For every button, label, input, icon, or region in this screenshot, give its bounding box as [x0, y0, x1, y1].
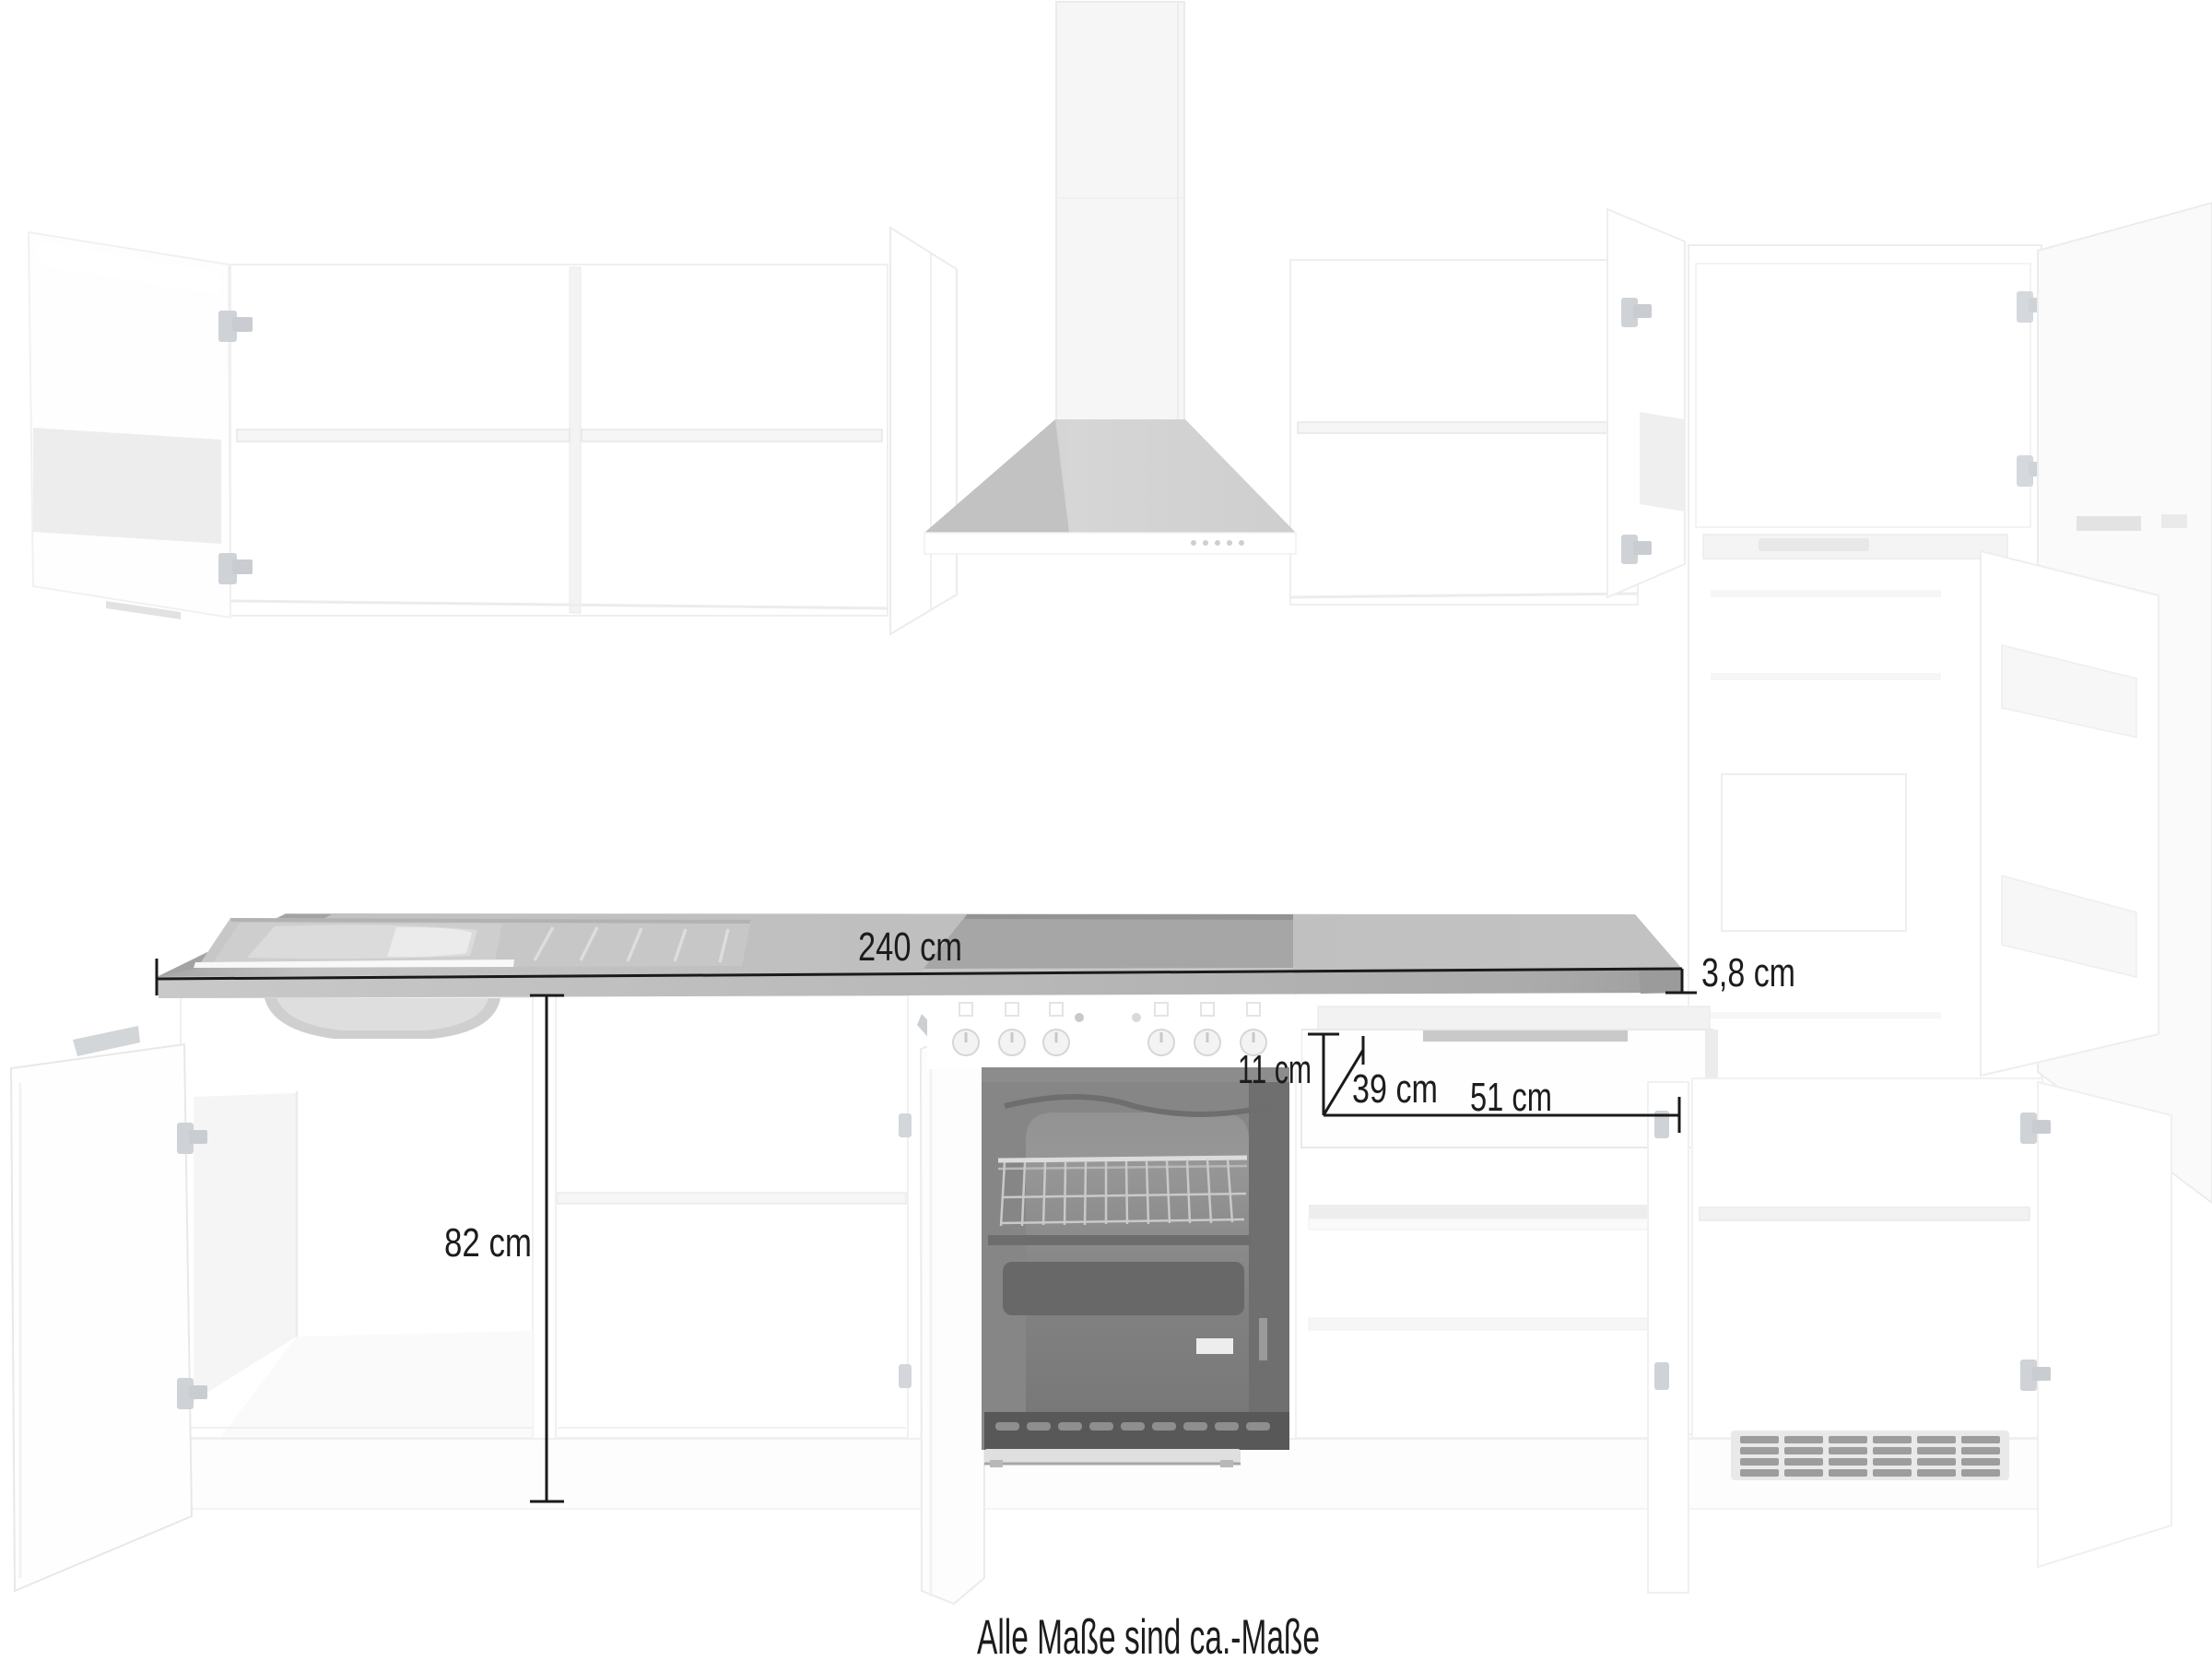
svg-text:11 cm: 11 cm	[1238, 1047, 1312, 1092]
svg-text:240 cm: 240 cm	[858, 924, 962, 970]
svg-text:82 cm: 82 cm	[444, 1220, 532, 1266]
svg-text:Alle Maße sind ca.-Maße: Alle Maße sind ca.-Maße	[977, 1610, 1320, 1660]
svg-text:51 cm: 51 cm	[1470, 1075, 1552, 1120]
svg-text:39 cm: 39 cm	[1352, 1066, 1438, 1112]
svg-text:3,8 cm: 3,8 cm	[1701, 950, 1795, 995]
